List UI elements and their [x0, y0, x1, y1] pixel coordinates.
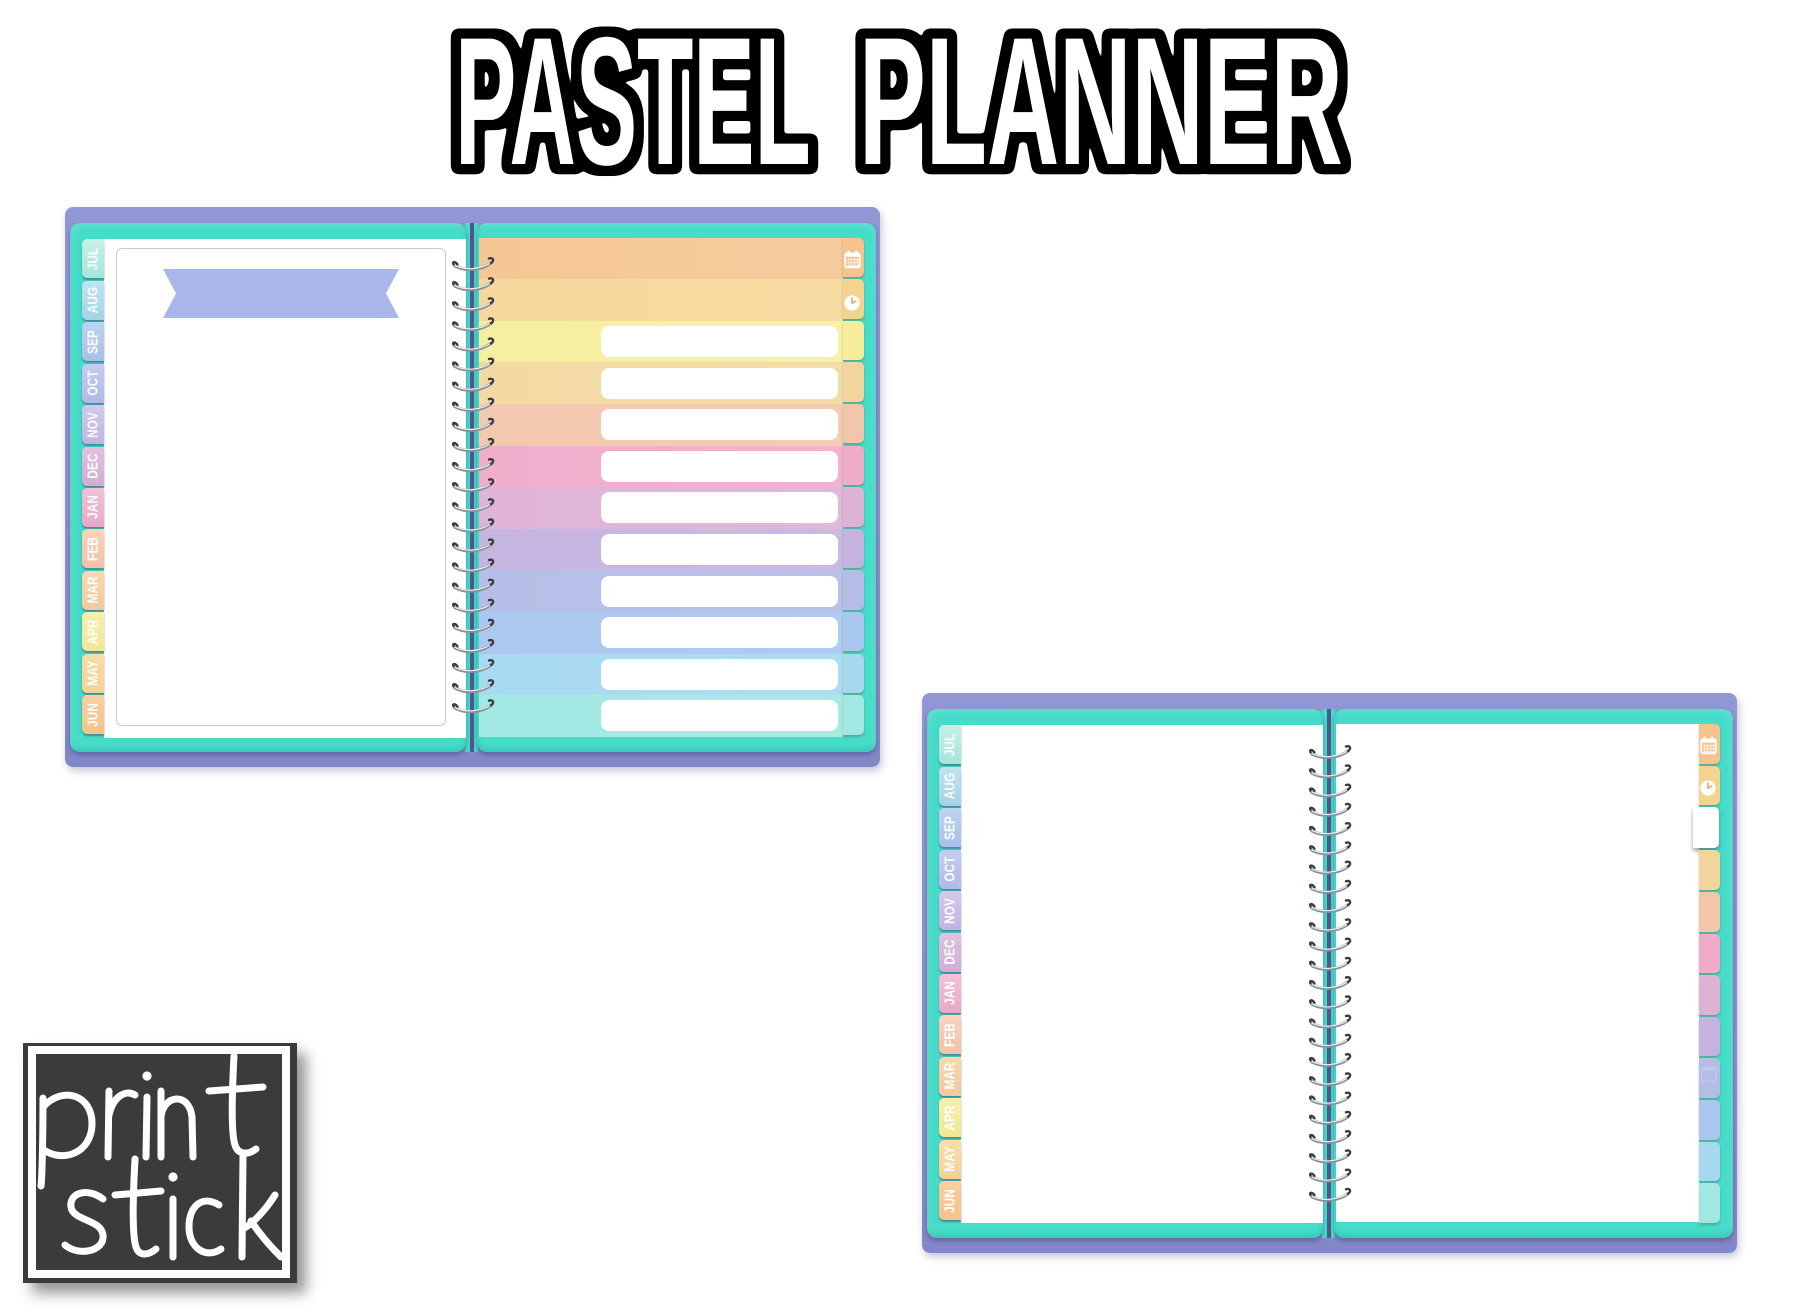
svg-text:PASTEL: PASTEL	[455, 14, 811, 189]
svg-text:PLANNER: PLANNER	[859, 14, 1343, 189]
